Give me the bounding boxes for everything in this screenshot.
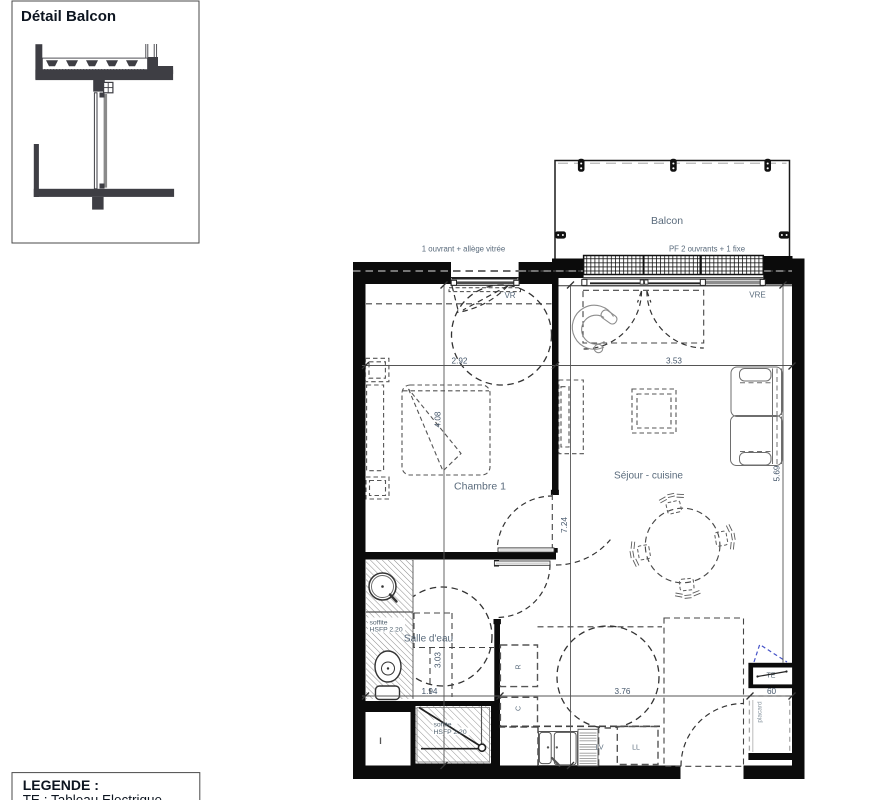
svg-text:placard: placard [757, 701, 764, 723]
svg-text:VR: VR [504, 291, 515, 300]
svg-text:HSFP 2.20: HSFP 2.20 [434, 729, 467, 736]
svg-text:60: 60 [767, 687, 777, 696]
svg-text:Balcon: Balcon [651, 215, 683, 227]
svg-text:HSFP 2.20: HSFP 2.20 [370, 627, 403, 634]
svg-text:1.94: 1.94 [422, 687, 438, 696]
svg-text:2.92: 2.92 [452, 357, 468, 366]
svg-text:3.03: 3.03 [434, 652, 443, 668]
svg-text:VRE: VRE [749, 291, 765, 300]
svg-text:PF 2 ouvrants + 1 fixe: PF 2 ouvrants + 1 fixe [669, 245, 745, 254]
svg-text:R: R [516, 664, 523, 669]
svg-text:Chambre 1: Chambre 1 [454, 481, 506, 493]
svg-text:7.24: 7.24 [560, 517, 569, 533]
svg-text:Détail Balcon: Détail Balcon [21, 8, 116, 25]
svg-text:4.08: 4.08 [434, 411, 443, 427]
svg-text:5.69: 5.69 [773, 465, 782, 481]
svg-text:3.76: 3.76 [615, 687, 631, 696]
svg-text:LEGENDE :: LEGENDE : [23, 777, 99, 793]
svg-text:soffite: soffite [370, 620, 388, 627]
svg-text:Salle d'eau: Salle d'eau [404, 634, 453, 645]
svg-text:LL: LL [632, 745, 640, 752]
svg-text:3.53: 3.53 [666, 357, 682, 366]
svg-text:Séjour - cuisine: Séjour - cuisine [614, 470, 683, 481]
svg-text:C: C [516, 706, 523, 711]
svg-text:1 ouvrant + allège vitrée: 1 ouvrant + allège vitrée [422, 245, 505, 254]
svg-text:soffite: soffite [434, 722, 452, 729]
svg-text:TE : Tableau Electrique: TE : Tableau Electrique [23, 793, 162, 800]
svg-text:LV: LV [595, 745, 603, 752]
